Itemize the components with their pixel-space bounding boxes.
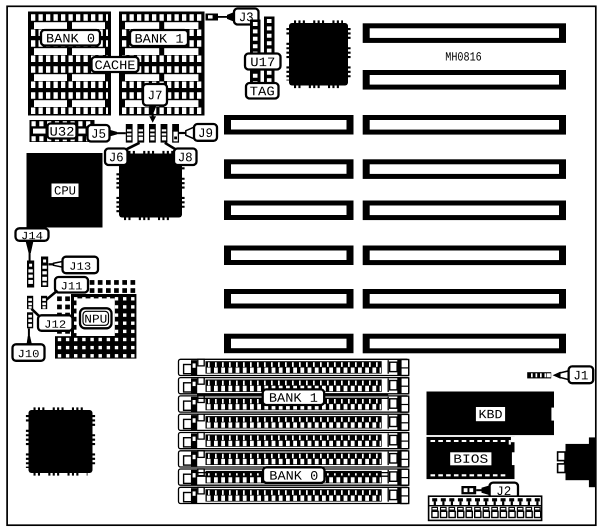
svg-text:MH0816: MH0816 — [445, 50, 482, 64]
svg-text:J13: J13 — [69, 262, 91, 274]
svg-text:J1: J1 — [573, 368, 588, 383]
svg-text:BANK 0: BANK 0 — [269, 469, 318, 484]
svg-text:NPU: NPU — [84, 313, 107, 327]
svg-text:TAG: TAG — [250, 84, 275, 99]
svg-text:BANK 1: BANK 1 — [269, 391, 318, 406]
svg-text:J10: J10 — [17, 349, 39, 361]
svg-text:BANK 0: BANK 0 — [46, 31, 95, 46]
svg-text:J6: J6 — [109, 150, 124, 165]
svg-text:J5: J5 — [91, 127, 106, 142]
svg-text:J9: J9 — [198, 126, 213, 141]
svg-text:BIOS: BIOS — [453, 453, 488, 467]
svg-text:CPU: CPU — [54, 184, 76, 198]
svg-text:KBD: KBD — [478, 408, 502, 422]
svg-text:U32: U32 — [49, 125, 74, 140]
svg-text:J8: J8 — [178, 150, 193, 165]
svg-text:J11: J11 — [60, 281, 82, 293]
svg-text:J12: J12 — [44, 320, 66, 332]
svg-text:CACHE: CACHE — [94, 58, 135, 73]
svg-text:U17: U17 — [250, 55, 275, 70]
svg-text:BANK 1: BANK 1 — [134, 32, 183, 47]
svg-text:J7: J7 — [147, 88, 162, 103]
